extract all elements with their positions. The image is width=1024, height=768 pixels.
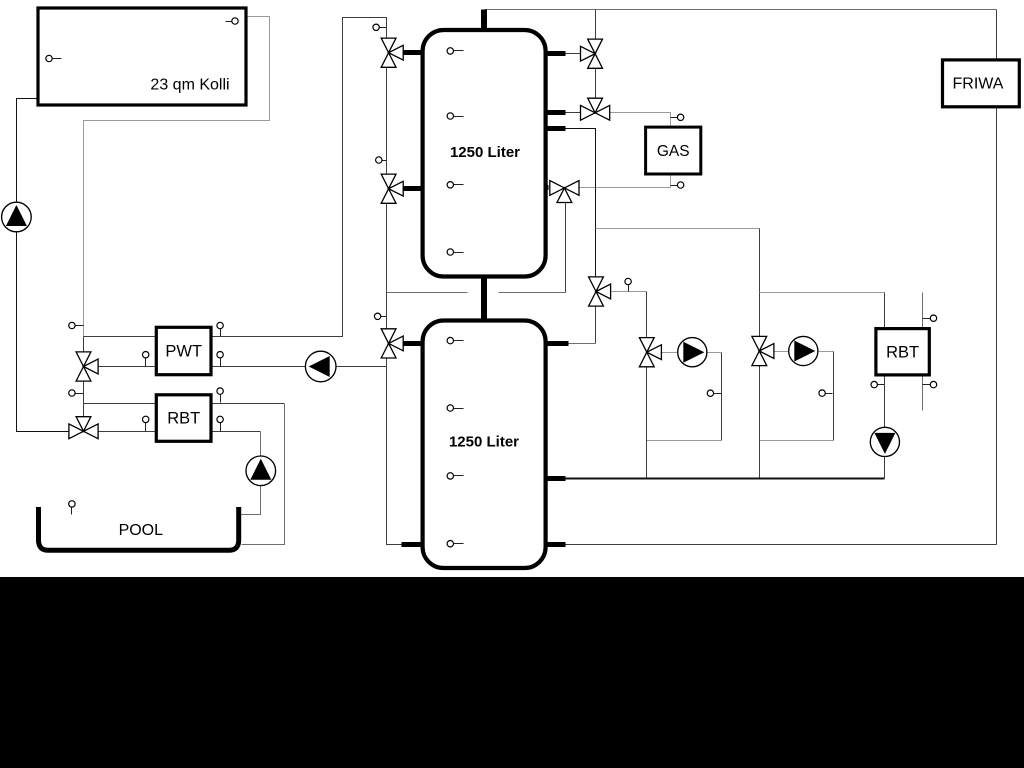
svg-text:POOL: POOL bbox=[119, 522, 164, 539]
svg-text:RBT: RBT bbox=[167, 410, 200, 428]
svg-text:1250 Liter: 1250 Liter bbox=[449, 433, 519, 450]
svg-text:23 qm Kolli: 23 qm Kolli bbox=[150, 77, 229, 94]
svg-text:RBT: RBT bbox=[886, 343, 919, 361]
svg-text:1250 Liter: 1250 Liter bbox=[450, 144, 520, 161]
svg-text:FRIWA: FRIWA bbox=[953, 76, 1004, 93]
svg-text:PWT: PWT bbox=[165, 342, 202, 360]
svg-text:GAS: GAS bbox=[657, 143, 690, 160]
